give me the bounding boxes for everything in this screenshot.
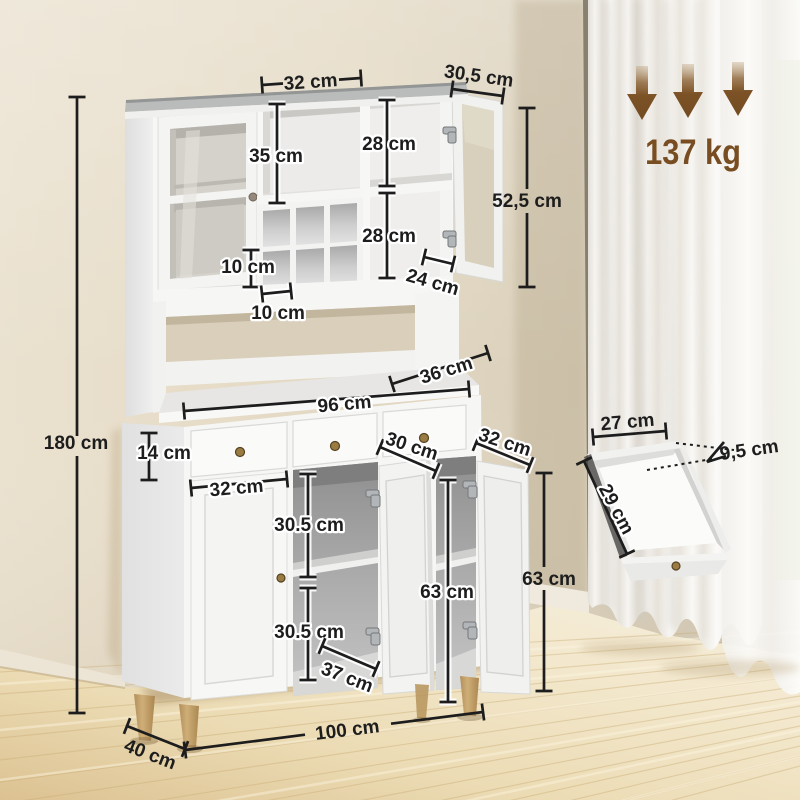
svg-text:52,5 cm: 52,5 cm [492, 191, 562, 212]
svg-text:63 cm: 63 cm [420, 582, 474, 603]
svg-text:28 cm: 28 cm [362, 134, 416, 155]
svg-text:63 cm: 63 cm [522, 569, 576, 590]
svg-text:30.5 cm: 30.5 cm [274, 622, 344, 643]
svg-text:35 cm: 35 cm [249, 146, 303, 167]
svg-text:10 cm: 10 cm [251, 303, 305, 324]
svg-text:32 cm: 32 cm [283, 70, 338, 95]
svg-text:14 cm: 14 cm [137, 443, 191, 464]
svg-text:137 kg: 137 kg [645, 132, 741, 171]
svg-text:180 cm: 180 cm [44, 433, 108, 454]
svg-text:30.5 cm: 30.5 cm [274, 515, 344, 536]
svg-text:10 cm: 10 cm [221, 257, 275, 278]
svg-text:28 cm: 28 cm [362, 226, 416, 247]
